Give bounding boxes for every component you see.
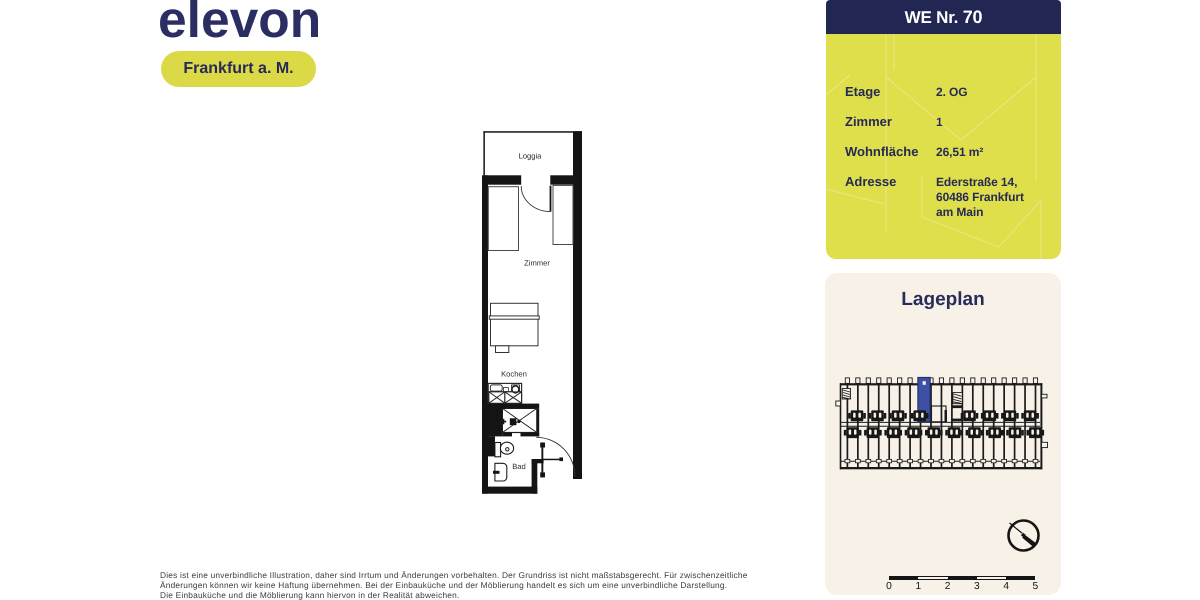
svg-text:Kochen: Kochen — [501, 369, 527, 378]
svg-text:Zimmer: Zimmer — [524, 259, 550, 268]
svg-text:Bad: Bad — [512, 462, 526, 471]
svg-text:Loggia: Loggia — [519, 151, 543, 160]
